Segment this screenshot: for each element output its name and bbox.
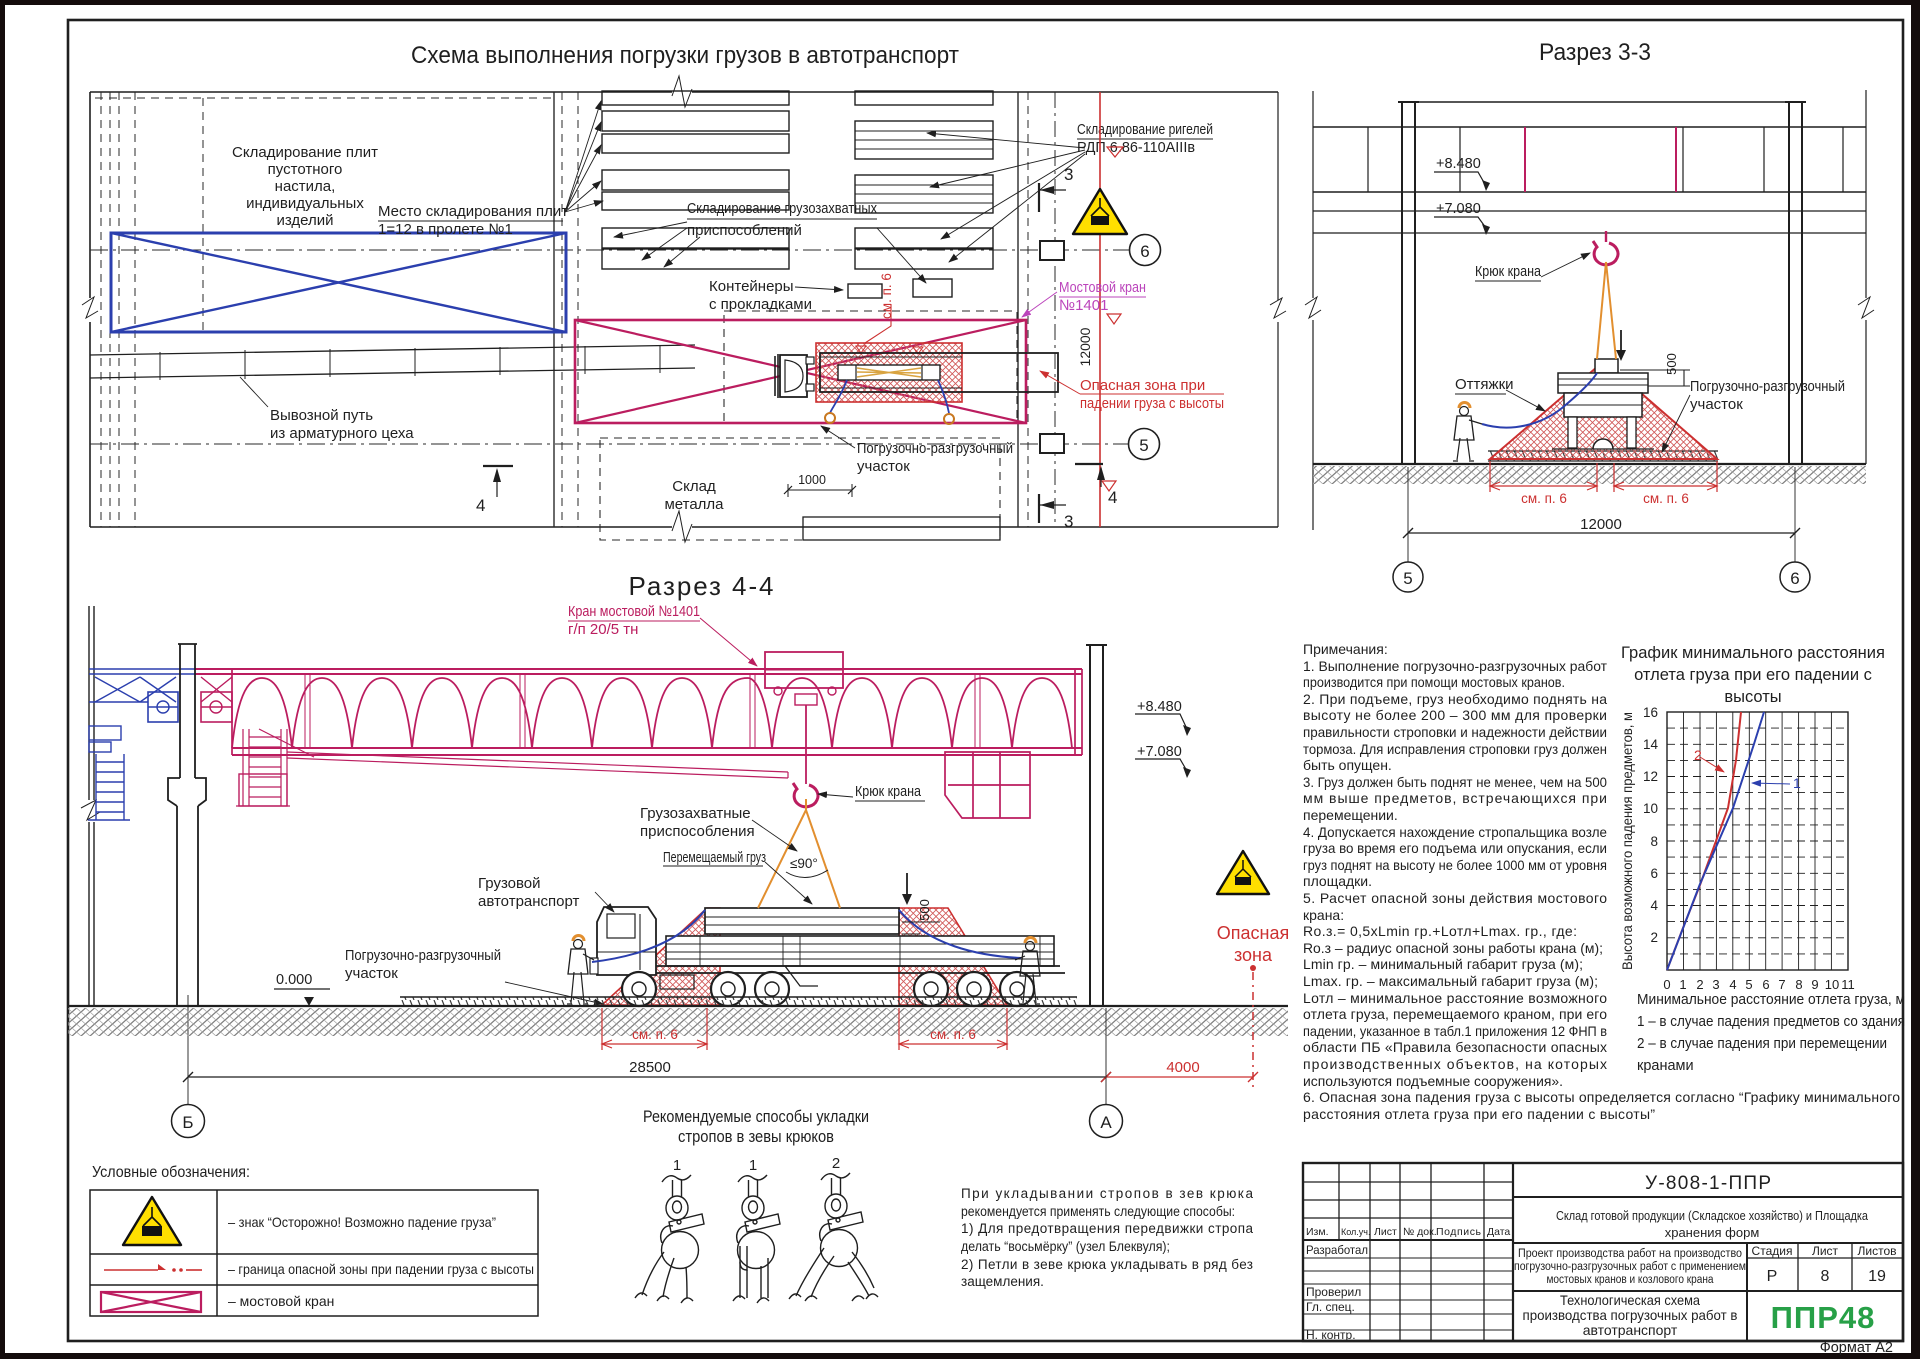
svg-text:5: 5 bbox=[1745, 977, 1752, 992]
svg-text:4: 4 bbox=[476, 496, 485, 515]
svg-text:6. Опасная зона падения груза: 6. Опасная зона падения груза с высоты о… bbox=[1303, 1089, 1900, 1105]
svg-text:Разрез 4-4: Разрез 4-4 bbox=[629, 571, 774, 601]
svg-text:Грузозахватные: Грузозахватные bbox=[640, 805, 751, 822]
svg-text:График минимального расстояния: График минимального расстояния bbox=[1621, 644, 1885, 662]
svg-text:6: 6 bbox=[1790, 569, 1799, 588]
svg-text:14: 14 bbox=[1643, 737, 1659, 752]
svg-text:Проект производства работ на п: Проект производства работ на производств… bbox=[1518, 1248, 1742, 1260]
svg-text:– мостовой кран: – мостовой кран bbox=[228, 1293, 334, 1309]
svg-text:см. п. 6: см. п. 6 bbox=[1521, 491, 1567, 506]
svg-text:Вывозной путь: Вывозной путь bbox=[270, 407, 373, 424]
svg-text:индивидуальных: индивидуальных bbox=[246, 195, 364, 212]
svg-text:8: 8 bbox=[1650, 834, 1658, 849]
svg-text:Кран мостовой №1401: Кран мостовой №1401 bbox=[568, 603, 700, 620]
svg-text:РДП 6.86-110АIIIв: РДП 6.86-110АIIIв bbox=[1077, 139, 1195, 156]
svg-text:– граница опасной зоны при пад: – граница опасной зоны при падении груза… bbox=[228, 1261, 534, 1277]
svg-text:см. п. 6: см. п. 6 bbox=[930, 1027, 976, 1042]
svg-text:500: 500 bbox=[1664, 353, 1679, 375]
svg-text:рекомендуется применять следую: рекомендуется применять следующие способ… bbox=[961, 1204, 1235, 1219]
svg-text:Место складирования плит: Место складирования плит bbox=[378, 203, 568, 220]
svg-text:настила,: настила, bbox=[275, 178, 336, 195]
svg-text:Контейнеры: Контейнеры bbox=[709, 278, 794, 295]
svg-text:зона: зона bbox=[1234, 945, 1273, 965]
svg-text:приспособления: приспособления bbox=[640, 823, 755, 840]
svg-text:9: 9 bbox=[1811, 977, 1818, 992]
svg-text:3: 3 bbox=[1712, 977, 1719, 992]
svg-text:1: 1 bbox=[749, 1157, 757, 1174]
svg-text:Б: Б bbox=[182, 1113, 193, 1132]
svg-text:Н. контр.: Н. контр. bbox=[1306, 1328, 1356, 1342]
svg-text:ППР48: ППР48 bbox=[1771, 1300, 1876, 1335]
svg-text:Погрузочно-разгрузочный: Погрузочно-разгрузочный bbox=[345, 947, 501, 964]
svg-text:№ док.: № док. bbox=[1403, 1226, 1437, 1238]
svg-text:Погрузочно-разгрузочный: Погрузочно-разгрузочный bbox=[857, 440, 1013, 457]
svg-text:Схема выполнения погрузки груз: Схема выполнения погрузки грузов в автот… bbox=[411, 42, 959, 69]
svg-text:6: 6 bbox=[1140, 242, 1149, 261]
svg-text:7: 7 bbox=[1778, 977, 1785, 992]
svg-text:Изм.: Изм. bbox=[1306, 1226, 1329, 1238]
svg-text:кранами: кранами bbox=[1637, 1058, 1694, 1074]
svg-text:Гл. спец.: Гл. спец. bbox=[1306, 1300, 1355, 1314]
svg-text:Крюк крана: Крюк крана bbox=[1475, 263, 1542, 280]
svg-text:Опасная: Опасная bbox=[1217, 923, 1289, 943]
svg-text:1=12 в пролете №1: 1=12 в пролете №1 bbox=[378, 221, 513, 238]
svg-text:– знак “Осторожно! Возможно па: – знак “Осторожно! Возможно падение груз… bbox=[228, 1214, 496, 1230]
svg-text:изделий: изделий bbox=[276, 212, 333, 229]
svg-text:Листов: Листов bbox=[1858, 1244, 1897, 1258]
svg-text:Лист: Лист bbox=[1812, 1244, 1839, 1258]
svg-text:Минимальное расстояние отлета: Минимальное расстояние отлета груза, м bbox=[1637, 992, 1905, 1008]
svg-text:Рекомендуемые способы укладки: Рекомендуемые способы укладки bbox=[643, 1107, 869, 1126]
svg-text:+7.080: +7.080 bbox=[1137, 744, 1182, 760]
svg-text:мостовых кранов и козлового кр: мостовых кранов и козлового крана bbox=[1547, 1274, 1715, 1286]
svg-text:Lmax. гр. – максимальный габар: Lmax. гр. – максимальный габарит груза (… bbox=[1303, 973, 1598, 989]
svg-text:стропов в зевы крюков: стропов в зевы крюков bbox=[678, 1127, 834, 1146]
svg-text:груза во время его подъема или: груза во время его подъема или опускания… bbox=[1303, 840, 1607, 856]
svg-text:1 – в случае падения предметов: 1 – в случае падения предметов со здания bbox=[1637, 1014, 1905, 1030]
svg-text:груз поднят на высоту не более: груз поднят на высоту не более 1000 мм о… bbox=[1303, 857, 1607, 873]
svg-text:Стадия: Стадия bbox=[1752, 1244, 1793, 1258]
svg-text:2: 2 bbox=[1694, 747, 1702, 763]
svg-text:защемления.: защемления. bbox=[961, 1274, 1044, 1289]
svg-text:Склад: Склад bbox=[672, 478, 716, 495]
svg-text:8: 8 bbox=[1795, 977, 1802, 992]
svg-text:3. Груз должен быть поднят не: 3. Груз должен быть поднят не менее, чем… bbox=[1303, 774, 1607, 790]
svg-text:5. Расчет опасной зоны действи: 5. Расчет опасной зоны действия мостовог… bbox=[1303, 890, 1607, 906]
svg-text:производственных объектов, на: производственных объектов, на которых bbox=[1303, 1056, 1607, 1072]
svg-text:4: 4 bbox=[1108, 488, 1117, 507]
svg-text:8: 8 bbox=[1821, 1268, 1830, 1285]
svg-text:Технологическая схема: Технологическая схема bbox=[1560, 1292, 1700, 1308]
svg-text:производства погрузочных работ: производства погрузочных работ в bbox=[1523, 1307, 1738, 1323]
svg-text:Складирование ригелей: Складирование ригелей bbox=[1077, 121, 1213, 138]
svg-text:Лист: Лист bbox=[1374, 1226, 1397, 1238]
svg-text:12000: 12000 bbox=[1077, 327, 1093, 366]
svg-text:используются подъемные сооруже: используются подъемные сооружения». bbox=[1303, 1073, 1563, 1089]
svg-text:11: 11 bbox=[1841, 977, 1855, 992]
svg-text:10: 10 bbox=[1643, 801, 1658, 816]
svg-text:Склад готовой продукции (Склад: Склад готовой продукции (Складское хозяй… bbox=[1556, 1208, 1869, 1223]
svg-text:+8.480: +8.480 bbox=[1137, 699, 1182, 715]
svg-text:4: 4 bbox=[1650, 898, 1658, 913]
svg-text:5: 5 bbox=[1403, 569, 1412, 588]
svg-text:области ПБ «Правила безопаснос: области ПБ «Правила безопасности опасных bbox=[1303, 1039, 1607, 1055]
svg-text:1) Для предотвращения пере: 1) Для предотвращения передвижки стропа bbox=[961, 1221, 1253, 1236]
svg-text:мм выше предметов, встречающих: мм выше предметов, встречающихся при bbox=[1303, 790, 1607, 806]
svg-text:площадки.: площадки. bbox=[1303, 873, 1372, 889]
svg-text:2 – в случае падения при перем: 2 – в случае падения при перемещении bbox=[1637, 1036, 1887, 1052]
svg-text:Погрузочно-разгрузочный: Погрузочно-разгрузочный bbox=[1690, 378, 1845, 395]
svg-text:6: 6 bbox=[1650, 866, 1658, 881]
svg-text:расстояния отлета груза при ег: расстояния отлета груза при его падении … bbox=[1303, 1106, 1655, 1122]
svg-text:Мостовой кран: Мостовой кран bbox=[1059, 279, 1146, 296]
svg-text:Разработал: Разработал bbox=[1306, 1243, 1368, 1257]
svg-text:Перемещаемый груз: Перемещаемый груз bbox=[663, 849, 766, 866]
svg-text:№1401: №1401 bbox=[1059, 297, 1108, 314]
svg-text:быть опущен.: быть опущен. bbox=[1303, 757, 1392, 773]
svg-text:2: 2 bbox=[1650, 930, 1658, 945]
svg-text:+8.480: +8.480 bbox=[1436, 156, 1481, 172]
svg-text:Lmin гр. – минимальный габарит: Lmin гр. – минимальный габарит груза (м)… bbox=[1303, 956, 1583, 972]
svg-text:Крюк крана: Крюк крана bbox=[855, 783, 922, 800]
svg-text:хранения форм: хранения форм bbox=[1665, 1225, 1760, 1240]
svg-text:1. Выполнение погрузочно-разгр: 1. Выполнение погрузочно-разгрузочных ра… bbox=[1303, 658, 1608, 674]
svg-text:см. п. 6: см. п. 6 bbox=[1643, 491, 1689, 506]
svg-text:участок: участок bbox=[857, 458, 910, 475]
svg-text:Проверил: Проверил bbox=[1306, 1285, 1361, 1299]
svg-text:падении груза с высоты: падении груза с высоты bbox=[1080, 395, 1224, 412]
svg-text:Складирование грузозахватных: Складирование грузозахватных bbox=[687, 200, 877, 217]
svg-text:Оттяжки: Оттяжки bbox=[1455, 376, 1514, 393]
svg-text:Высота возможного падения пред: Высота возможного падения предметов, м bbox=[1620, 712, 1635, 970]
svg-text:3: 3 bbox=[1064, 512, 1073, 531]
svg-text:4: 4 bbox=[1729, 977, 1736, 992]
svg-text:металла: металла bbox=[664, 496, 724, 513]
svg-text:отлета груза при его падении с: отлета груза при его падении с bbox=[1634, 666, 1872, 684]
svg-text:≤90°: ≤90° bbox=[790, 856, 818, 871]
svg-text:2: 2 bbox=[1696, 977, 1703, 992]
svg-text:Грузовой: Грузовой bbox=[478, 875, 541, 892]
svg-text:Примечания:: Примечания: bbox=[1303, 641, 1388, 657]
svg-text:0: 0 bbox=[1663, 977, 1670, 992]
svg-text:из арматурного цеха: из арматурного цеха bbox=[270, 425, 414, 442]
svg-text:1000: 1000 bbox=[798, 473, 826, 487]
svg-text:Подпись: Подпись bbox=[1436, 1226, 1482, 1238]
svg-text:высоты: высоты bbox=[1724, 688, 1781, 706]
svg-text:Опасная зона при: Опасная зона при bbox=[1080, 377, 1205, 394]
svg-text:5: 5 bbox=[1139, 436, 1148, 455]
svg-text:Разрез 3-3: Разрез 3-3 bbox=[1539, 39, 1651, 66]
svg-text:погрузочно-разгрузочных работ: погрузочно-разгрузочных работ с применен… bbox=[1514, 1261, 1746, 1273]
svg-text:2) Петли в зеве крюка укла: 2) Петли в зеве крюка укладывать в ряд б… bbox=[961, 1257, 1253, 1272]
svg-text:+7.080: +7.080 bbox=[1436, 201, 1481, 217]
svg-text:2. При подъеме, груз необходим: 2. При подъеме, груз необходимо поднять … bbox=[1303, 691, 1607, 707]
svg-text:Кол.уч.: Кол.уч. bbox=[1341, 1227, 1371, 1237]
svg-text:Р: Р bbox=[1767, 1268, 1778, 1285]
svg-text:Условные обозначения:: Условные обозначения: bbox=[92, 1164, 250, 1181]
svg-text:19: 19 bbox=[1868, 1268, 1886, 1285]
svg-text:Ro.з.= 0,5xLmin гр.+Lотл+Lmax.: Ro.з.= 0,5xLmin гр.+Lотл+Lmax. гр., где: bbox=[1303, 923, 1577, 939]
svg-text:см. п. 6: см. п. 6 bbox=[879, 273, 894, 319]
svg-text:Lотл – минимальное расстояние: Lотл – минимальное расстояние возможного bbox=[1303, 990, 1607, 1006]
svg-text:отлета груза, перемещаемого кр: отлета груза, перемещаемого краном, при … bbox=[1303, 1006, 1607, 1022]
svg-text:3: 3 bbox=[1064, 165, 1073, 184]
svg-text:делать “восьмёрку” (узел Блекв: делать “восьмёрку” (узел Блеквуля); bbox=[961, 1239, 1170, 1254]
svg-text:0.000: 0.000 bbox=[276, 972, 312, 988]
svg-text:Ro.з – радиус опасной зоны раб: Ro.з – радиус опасной зоны работы крана … bbox=[1303, 940, 1603, 956]
svg-text:10: 10 bbox=[1825, 977, 1839, 992]
svg-text:автотранспорт: автотранспорт bbox=[1583, 1322, 1678, 1338]
svg-text:1: 1 bbox=[1793, 775, 1801, 791]
svg-text:Дата: Дата bbox=[1487, 1226, 1510, 1238]
svg-text:производится при помощи мостов: производится при помощи мостовых кранов. bbox=[1303, 674, 1565, 690]
svg-text:4000: 4000 bbox=[1166, 1059, 1199, 1076]
svg-text:тормоза. Для исправления строп: тормоза. Для исправления строповки груз … bbox=[1303, 741, 1607, 757]
svg-text:16: 16 bbox=[1643, 705, 1658, 720]
svg-text:Складирование плит: Складирование плит bbox=[232, 144, 378, 161]
svg-text:участок: участок bbox=[1690, 396, 1743, 413]
svg-text:автотранспорт: автотранспорт bbox=[478, 893, 580, 910]
svg-text:12000: 12000 bbox=[1580, 516, 1622, 533]
svg-text:500: 500 bbox=[917, 899, 932, 921]
svg-text:4. Допускается нахождение стро: 4. Допускается нахождение стропальщика в… bbox=[1303, 824, 1607, 840]
svg-text:высоту не более 200 – 300 мм д: высоту не более 200 – 300 мм для проверк… bbox=[1303, 707, 1607, 723]
svg-text:28500: 28500 bbox=[629, 1059, 671, 1076]
svg-text:2: 2 bbox=[832, 1155, 840, 1172]
svg-text:Формат А2: Формат А2 bbox=[1820, 1340, 1893, 1356]
svg-text:12: 12 bbox=[1643, 769, 1658, 784]
svg-text:1: 1 bbox=[673, 1157, 681, 1174]
svg-text:А: А bbox=[1100, 1113, 1112, 1132]
svg-text:г/п 20/5 тн: г/п 20/5 тн bbox=[568, 621, 638, 638]
svg-text:перемещении.: перемещении. bbox=[1303, 807, 1398, 823]
svg-text:падении, указанное в табл.1 пр: падении, указанное в табл.1 приложения 1… bbox=[1303, 1023, 1607, 1039]
svg-text:При укладывании стропов в: При укладывании стропов в зев крюка bbox=[961, 1186, 1253, 1201]
svg-text:правильности строповки и надеж: правильности строповки и надежности дейс… bbox=[1303, 724, 1607, 740]
svg-text:1: 1 bbox=[1679, 977, 1686, 992]
svg-text:см. п. 6: см. п. 6 bbox=[632, 1027, 678, 1042]
svg-text:6: 6 bbox=[1762, 977, 1769, 992]
svg-text:крана:: крана: bbox=[1303, 907, 1344, 923]
svg-text:участок: участок bbox=[345, 965, 398, 982]
svg-text:пустотного: пустотного bbox=[268, 161, 343, 178]
svg-text:приспособлений: приспособлений bbox=[687, 222, 802, 239]
